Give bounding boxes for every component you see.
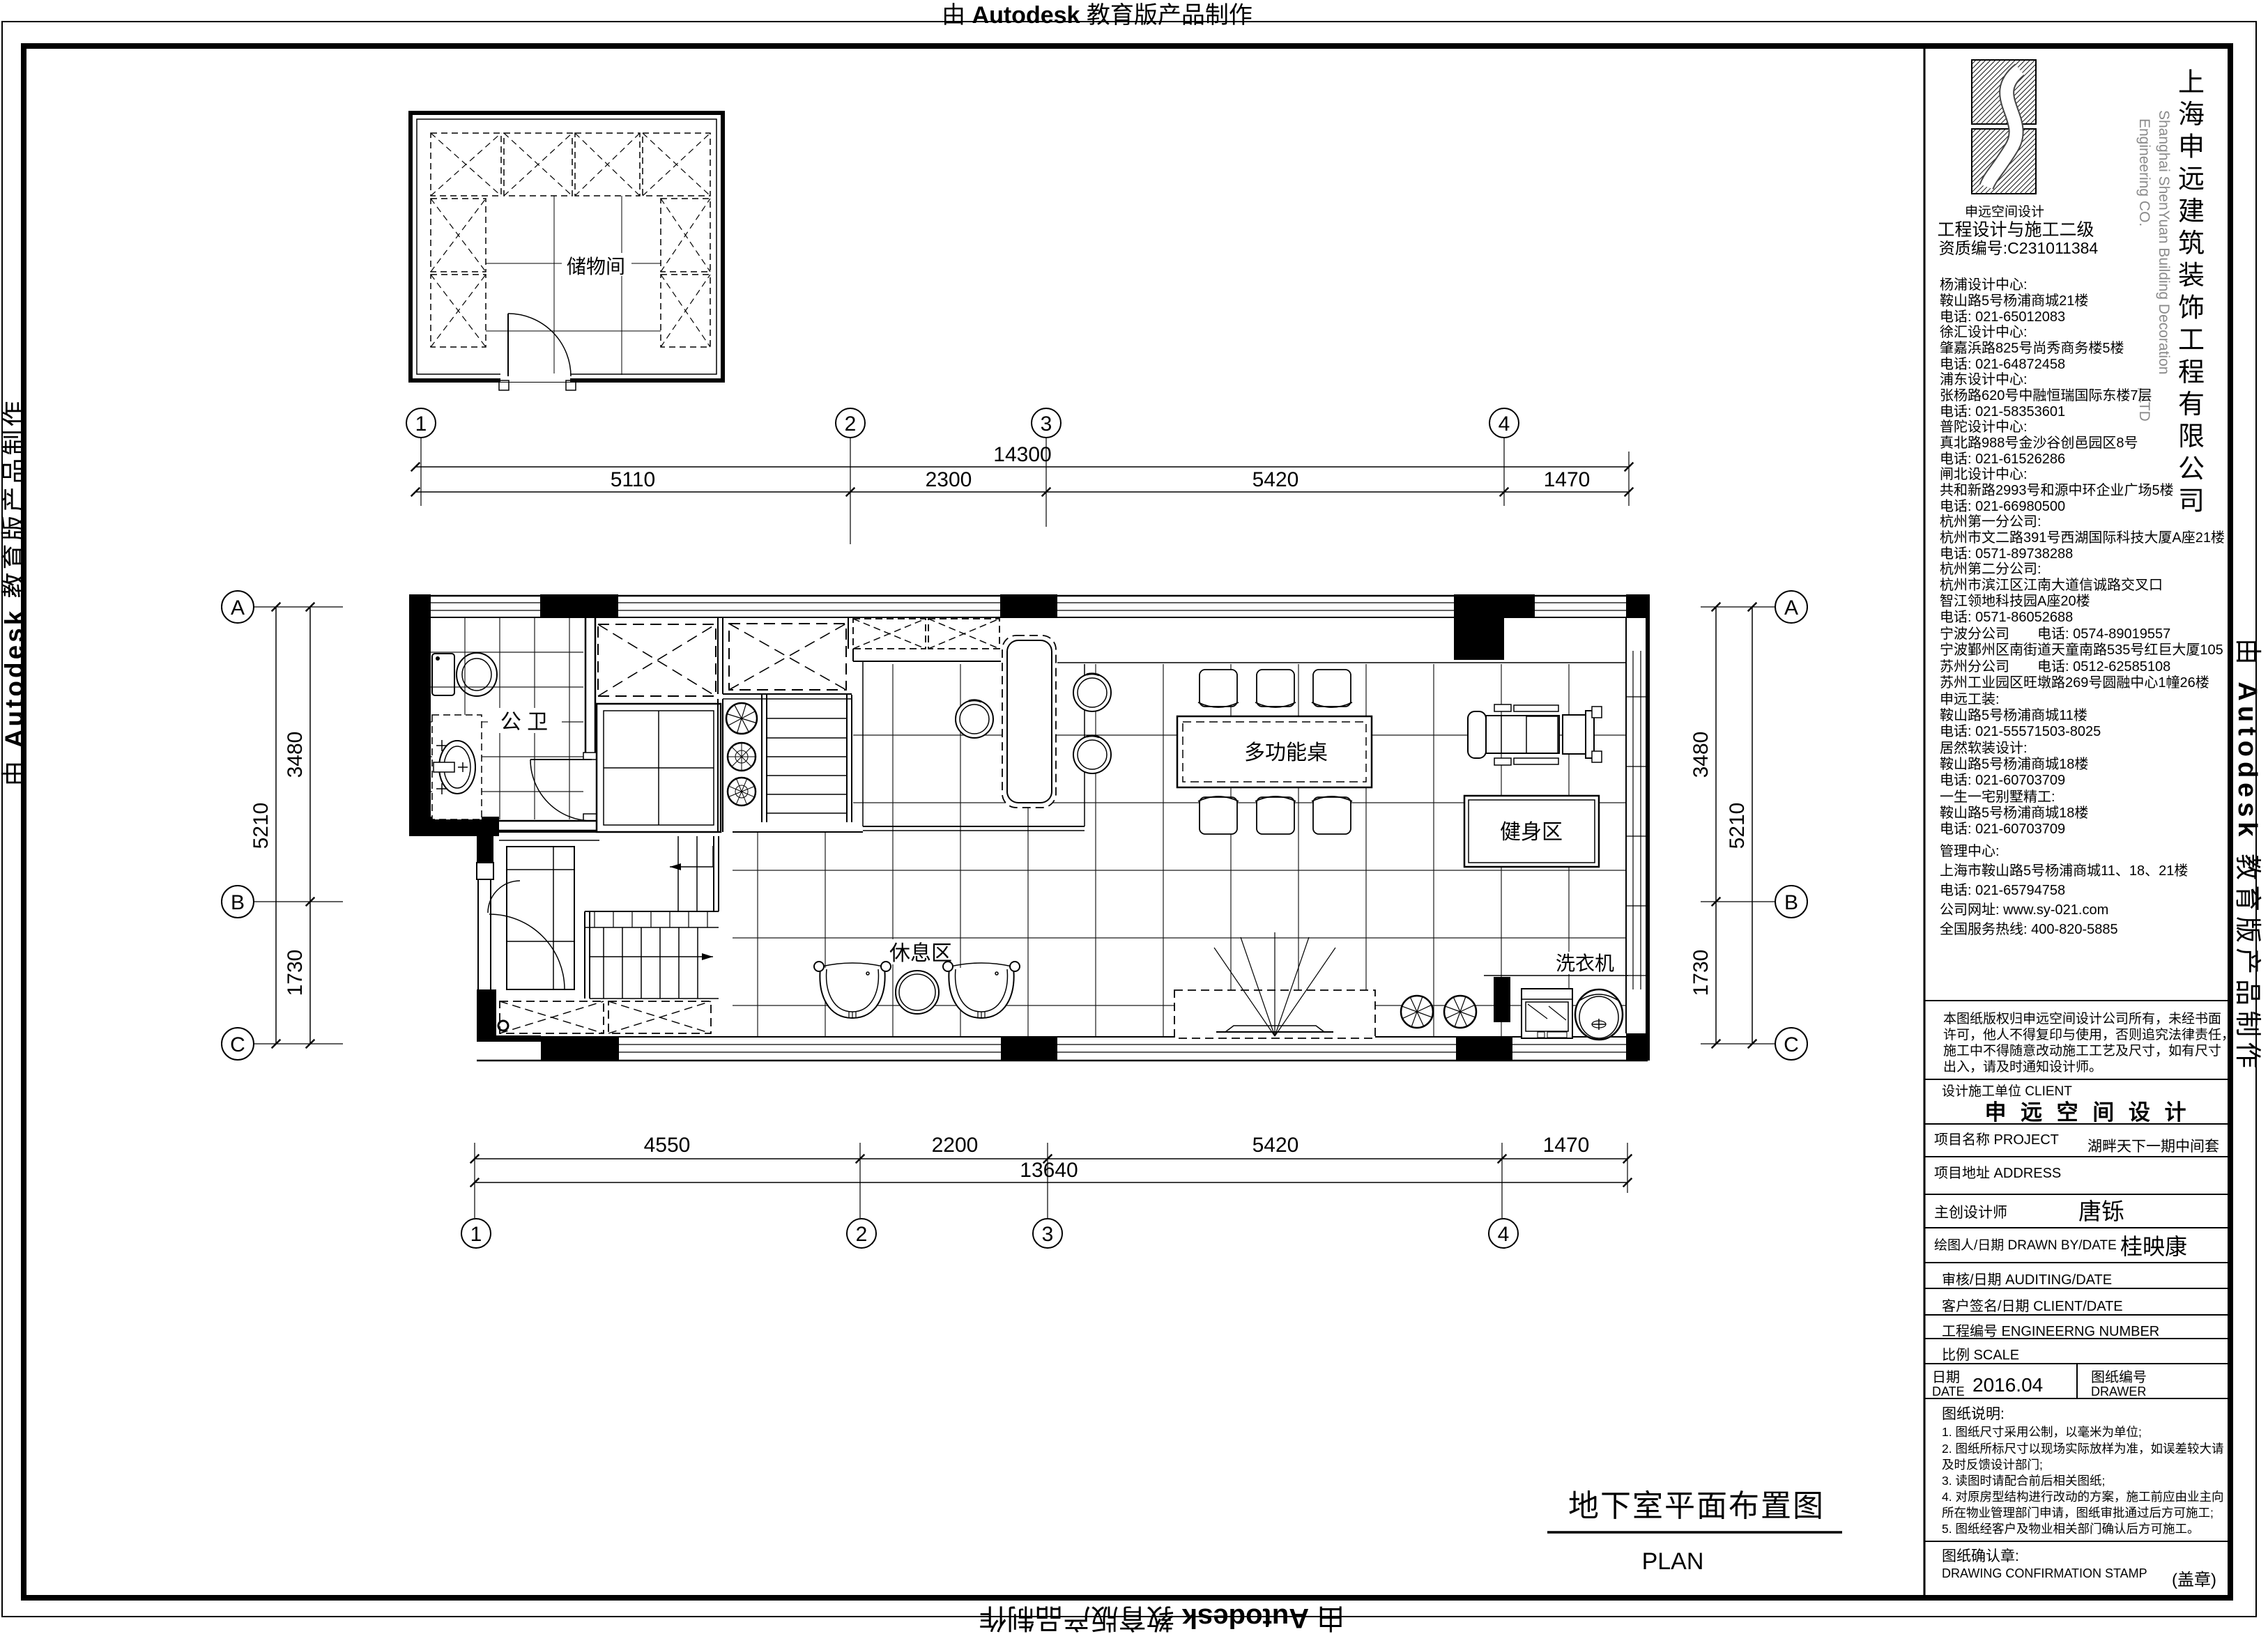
svg-text:所在物业管理部门申请，图纸审批通过后方可施工;: 所在物业管理部门申请，图纸审批通过后方可施工;: [1942, 1506, 2214, 1520]
svg-text:DATE: DATE: [1932, 1385, 1965, 1398]
svg-text:装: 装: [2178, 261, 2205, 291]
svg-text:居然软装设计:: 居然软装设计:: [1940, 740, 2028, 756]
svg-text:唐铄: 唐铄: [2078, 1198, 2124, 1224]
svg-text:许可，他人不得复印与使用，否则追究法律责任，: 许可，他人不得复印与使用，否则追究法律责任，: [1943, 1027, 2235, 1042]
svg-text:共和新路2993号和源中环企业广场5楼: 共和新路2993号和源中环企业广场5楼: [1940, 482, 2174, 498]
svg-text:DRAWING CONFIRMATION STAMP: DRAWING CONFIRMATION STAMP: [1942, 1566, 2147, 1580]
svg-text:智江领地科技园A座20楼: 智江领地科技园A座20楼: [1940, 593, 2090, 609]
svg-text:4: 4: [1498, 1223, 1510, 1246]
svg-text:项目地址 ADDRESS: 项目地址 ADDRESS: [1934, 1165, 2061, 1181]
svg-text:(盖章): (盖章): [2172, 1571, 2216, 1589]
svg-text:3. 读图时请配合前后相关图纸;: 3. 读图时请配合前后相关图纸;: [1942, 1474, 2105, 1488]
svg-text:桂映康: 桂映康: [2120, 1234, 2187, 1259]
svg-text:3480: 3480: [1689, 732, 1713, 778]
svg-text:申远工装:: 申远工装:: [1940, 691, 2000, 707]
svg-text:3: 3: [1042, 1223, 1054, 1246]
svg-text:及时反馈设计部门;: 及时反馈设计部门;: [1942, 1458, 2043, 1472]
svg-text:1: 1: [470, 1223, 482, 1246]
svg-text:鞍山路5号杨浦商城18楼: 鞍山路5号杨浦商城18楼: [1940, 756, 2088, 772]
svg-text:一生一宅别墅精工:: 一生一宅别墅精工:: [1940, 789, 2055, 805]
svg-text:13640: 13640: [1020, 1159, 1078, 1182]
svg-text:建: 建: [2178, 197, 2205, 226]
svg-text:A: A: [231, 596, 245, 619]
svg-text:C: C: [230, 1033, 245, 1056]
svg-text:电话: 021-64872458: 电话: 021-64872458: [1940, 356, 2065, 372]
svg-text:饰: 饰: [2178, 293, 2205, 323]
svg-text:湖畔天下一期中间套: 湖畔天下一期中间套: [2087, 1139, 2219, 1155]
svg-text:2200: 2200: [932, 1134, 979, 1157]
svg-text:电话: 021-61526286: 电话: 021-61526286: [1940, 451, 2065, 467]
svg-text:鞍山路5号杨浦商城21楼: 鞍山路5号杨浦商城21楼: [1940, 293, 2088, 309]
svg-text:图纸说明:: 图纸说明:: [1942, 1406, 2005, 1422]
svg-text:施工中不得随意改动施工工艺及尺寸，如有尺寸: 施工中不得随意改动施工工艺及尺寸，如有尺寸: [1943, 1043, 2221, 1058]
svg-text:资质编号:C231011384: 资质编号:C231011384: [1939, 239, 2099, 257]
svg-text:浦东设计中心:: 浦东设计中心:: [1940, 371, 2028, 387]
svg-text:申 远 空 间 设 计: 申 远 空 间 设 计: [1984, 1100, 2190, 1125]
svg-text:申远空间设计: 申远空间设计: [1965, 204, 2044, 219]
svg-text:日期: 日期: [1932, 1370, 1960, 1385]
svg-text:由 Autodesk 教育版产品制作: 由 Autodesk 教育版产品制作: [979, 1603, 1345, 1633]
svg-text:由 Autodesk 教育版产品制作: 由 Autodesk 教育版产品制作: [942, 2, 1252, 29]
svg-text:图纸确认章:: 图纸确认章:: [1942, 1548, 2019, 1564]
svg-text:电话: 021-60703709: 电话: 021-60703709: [1940, 772, 2065, 788]
svg-text:鞍山路5号杨浦商城18楼: 鞍山路5号杨浦商城18楼: [1940, 805, 2088, 821]
svg-text:电话: 021-60703709: 电话: 021-60703709: [1940, 821, 2065, 837]
svg-text:张杨路620号中融恒瑞国际东楼7层: 张杨路620号中融恒瑞国际东楼7层: [1940, 387, 2152, 403]
svg-text:程: 程: [2178, 358, 2205, 387]
svg-text:工程设计与施工二级: 工程设计与施工二级: [1937, 220, 2094, 240]
svg-text:1470: 1470: [1544, 468, 1591, 491]
svg-text:项目名称 PROJECT: 项目名称 PROJECT: [1934, 1132, 2059, 1148]
svg-text:上海市鞍山路5号杨浦商城11、18、21楼: 上海市鞍山路5号杨浦商城11、18、21楼: [1940, 863, 2188, 879]
svg-text:公司网址: www.sy-021.com: 公司网址: www.sy-021.com: [1940, 902, 2108, 918]
svg-text:5210: 5210: [250, 803, 273, 849]
svg-text:杭州市文二路391号西湖国际科技大厦A座21楼: 杭州市文二路391号西湖国际科技大厦A座21楼: [1940, 530, 2225, 546]
svg-text:杨浦设计中心:: 杨浦设计中心:: [1940, 277, 2028, 293]
svg-text:全国服务热线: 400-820-5885: 全国服务热线: 400-820-5885: [1940, 921, 2118, 937]
svg-text:限: 限: [2178, 422, 2205, 452]
svg-text:公: 公: [2178, 454, 2205, 484]
svg-text:筑: 筑: [2178, 229, 2205, 259]
svg-text:C: C: [1784, 1033, 1799, 1056]
svg-text:苏州工业园区旺墩路269号圆融中心1幢26楼: 苏州工业园区旺墩路269号圆融中心1幢26楼: [1940, 675, 2209, 691]
svg-text:鞍山路5号杨浦商城11楼: 鞍山路5号杨浦商城11楼: [1940, 707, 2087, 723]
svg-text:管理中心:: 管理中心:: [1940, 843, 2000, 859]
svg-text:徐汇设计中心:: 徐汇设计中心:: [1940, 324, 2028, 340]
svg-text:B: B: [231, 891, 245, 914]
svg-text:5420: 5420: [1252, 1134, 1299, 1157]
svg-text:休息区: 休息区: [889, 942, 952, 965]
svg-text:1: 1: [415, 413, 427, 436]
svg-text:图纸编号: 图纸编号: [2091, 1369, 2147, 1385]
svg-text:1. 图纸尺寸采用公制，以毫米为单位;: 1. 图纸尺寸采用公制，以毫米为单位;: [1942, 1425, 2142, 1439]
svg-text:5110: 5110: [611, 468, 656, 491]
svg-text:Shanghai ShenYuan Building Dec: Shanghai ShenYuan Building Decoration: [2156, 110, 2172, 374]
svg-text:5420: 5420: [1252, 468, 1299, 491]
svg-text:5. 图纸经客户及物业相关部门确认后方可施工。: 5. 图纸经客户及物业相关部门确认后方可施工。: [1942, 1522, 2199, 1536]
svg-text:宁波分公司 电话: 0574-89019557: 宁波分公司 电话: 0574-89019557: [1940, 626, 2170, 642]
svg-text:司: 司: [2178, 487, 2205, 516]
svg-text:2016.04: 2016.04: [1972, 1374, 2043, 1396]
svg-text:杭州第一分公司:: 杭州第一分公司:: [1940, 514, 2041, 530]
svg-text:电话: 021-66980500: 电话: 021-66980500: [1940, 498, 2065, 514]
svg-text:1470: 1470: [1543, 1134, 1590, 1157]
svg-text:闸北设计中心:: 闸北设计中心:: [1940, 466, 2028, 482]
svg-text:3: 3: [1041, 413, 1052, 436]
svg-text:肇嘉浜路825号尚秀商务楼5楼: 肇嘉浜路825号尚秀商务楼5楼: [1940, 340, 2124, 356]
svg-text:主创设计师: 主创设计师: [1934, 1205, 2007, 1221]
svg-text:4. 对原房型结构进行改动的方案，施工前应由业主向: 4. 对原房型结构进行改动的方案，施工前应由业主向: [1942, 1490, 2223, 1504]
svg-text:工程编号 ENGINEERNG NUMBER: 工程编号 ENGINEERNG NUMBER: [1942, 1323, 2159, 1339]
svg-text:14300: 14300: [993, 443, 1051, 466]
svg-text:DRAWER: DRAWER: [2091, 1385, 2146, 1398]
svg-text:5210: 5210: [1726, 803, 1749, 849]
svg-text:由 Autodesk 教育版产品制作: 由 Autodesk 教育版产品制作: [2232, 638, 2262, 1073]
svg-text:地下室平面布置图: 地下室平面布置图: [1568, 1489, 1825, 1523]
svg-text:真北路988号金沙谷创邑园区8号: 真北路988号金沙谷创邑园区8号: [1940, 435, 2138, 451]
svg-text:客户签名/日期 CLIENT/DATE: 客户签名/日期 CLIENT/DATE: [1942, 1298, 2123, 1314]
svg-text:3480: 3480: [284, 732, 307, 778]
svg-text:出入，请及时通知设计师。: 出入，请及时通知设计师。: [1943, 1059, 2102, 1074]
svg-text:1730: 1730: [284, 950, 307, 996]
svg-text:4550: 4550: [644, 1134, 691, 1157]
svg-text:电话: 0571-86052688: 电话: 0571-86052688: [1940, 609, 2073, 625]
svg-text:2. 图纸所标尺寸以现场实际放样为准，如误差较大请: 2. 图纸所标尺寸以现场实际放样为准，如误差较大请: [1942, 1442, 2223, 1456]
svg-text:1730: 1730: [1689, 950, 1713, 996]
svg-text:PLAN: PLAN: [1642, 1548, 1704, 1575]
svg-text:洗衣机: 洗衣机: [1556, 953, 1614, 974]
svg-text:申: 申: [2178, 132, 2205, 162]
svg-text:电话: 021-65794758: 电话: 021-65794758: [1940, 882, 2065, 898]
svg-text:本图纸版权归申远空间设计公司所有，未经书面: 本图纸版权归申远空间设计公司所有，未经书面: [1943, 1011, 2221, 1026]
svg-text:B: B: [1784, 891, 1798, 914]
svg-text:健身区: 健身区: [1500, 821, 1563, 844]
svg-text:储物间: 储物间: [567, 256, 625, 277]
svg-text:2: 2: [845, 413, 857, 436]
svg-text:审核/日期 AUDITING/DATE: 审核/日期 AUDITING/DATE: [1942, 1272, 2112, 1288]
svg-text:工: 工: [2178, 326, 2205, 355]
svg-text:上: 上: [2178, 68, 2205, 98]
svg-text:设计施工单位 CLIENT: 设计施工单位 CLIENT: [1942, 1084, 2072, 1099]
svg-text:杭州市滨江区江南大道信诚路交叉口: 杭州市滨江区江南大道信诚路交叉口: [1940, 577, 2163, 593]
svg-text:电话: 021-58353601: 电话: 021-58353601: [1940, 403, 2065, 419]
svg-text:远: 远: [2178, 165, 2205, 194]
svg-text:多功能桌: 多功能桌: [1244, 741, 1328, 764]
svg-text:绘图人/日期 DRAWN BY/DATE: 绘图人/日期 DRAWN BY/DATE: [1934, 1238, 2117, 1253]
svg-text:宁波鄞州区南街道天童南路535号红巨大厦105: 宁波鄞州区南街道天童南路535号红巨大厦105: [1940, 642, 2223, 658]
svg-text:海: 海: [2178, 100, 2205, 130]
svg-text:2300: 2300: [926, 468, 972, 491]
svg-text:A: A: [1784, 596, 1798, 619]
svg-text:4: 4: [1499, 413, 1510, 436]
svg-text:电话: 021-65012083: 电话: 021-65012083: [1940, 309, 2065, 325]
svg-text:电话: 0571-89738288: 电话: 0571-89738288: [1940, 546, 2073, 562]
svg-text:公 卫: 公 卫: [500, 711, 548, 734]
svg-text:苏州分公司 电话: 0512-62585108: 苏州分公司 电话: 0512-62585108: [1940, 658, 2170, 675]
svg-text:电话: 021-55571503-8025: 电话: 021-55571503-8025: [1940, 723, 2101, 739]
svg-text:比例 SCALE: 比例 SCALE: [1942, 1347, 2019, 1363]
svg-text:2: 2: [856, 1223, 868, 1246]
svg-text:有: 有: [2178, 390, 2205, 419]
svg-text:杭州第二分公司:: 杭州第二分公司:: [1940, 561, 2041, 577]
svg-text:由 Autodesk 教育版产品制作: 由 Autodesk 教育版产品制作: [0, 398, 29, 786]
svg-text:普陀设计中心:: 普陀设计中心:: [1940, 419, 2028, 435]
svg-text:Engineering CO.: Engineering CO.: [2136, 118, 2152, 226]
